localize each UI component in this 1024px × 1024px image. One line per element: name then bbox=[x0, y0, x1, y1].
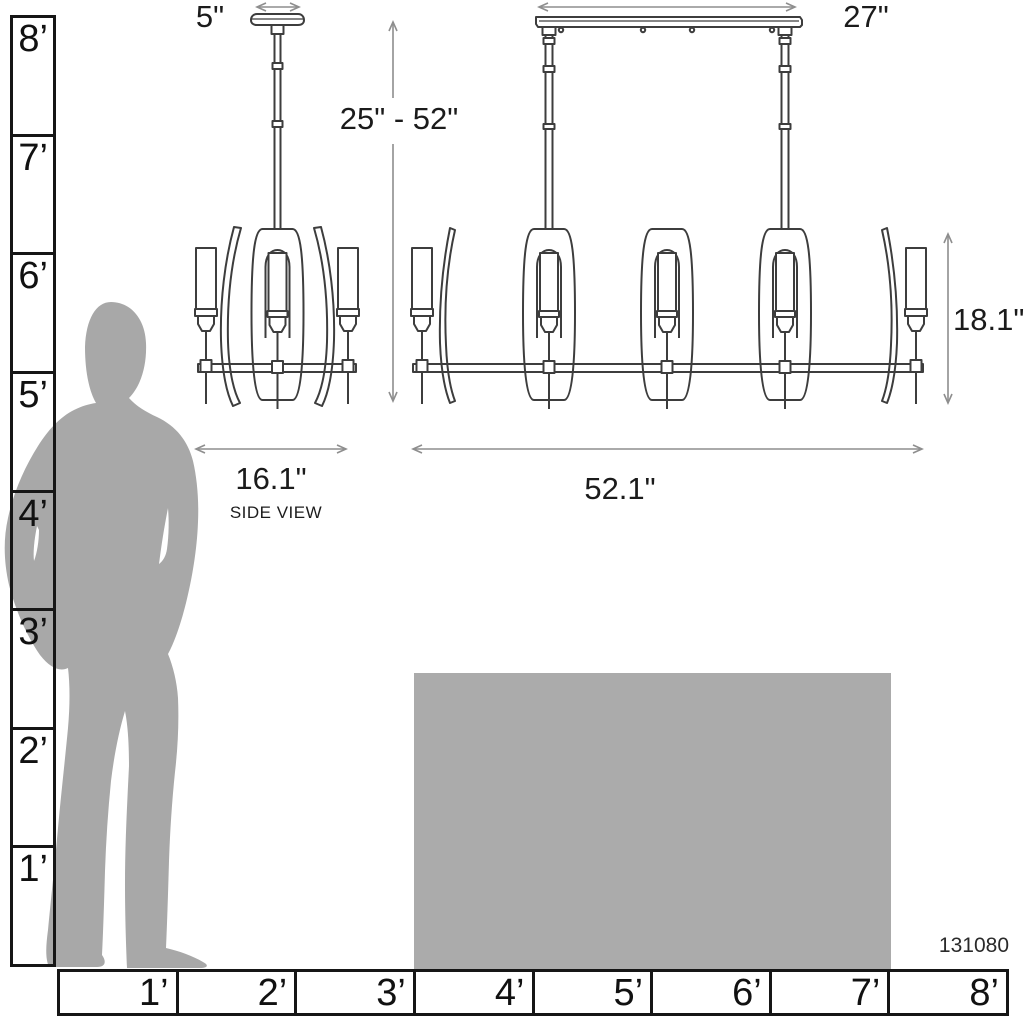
canopy-width-arrow bbox=[257, 3, 299, 11]
floor-label-5ft: 5’ bbox=[614, 973, 651, 1013]
fixture-line-art bbox=[0, 0, 1024, 1024]
height-label-2ft: 2’ bbox=[13, 730, 53, 771]
ruler-cell: 8’ bbox=[13, 18, 53, 137]
right-candle bbox=[337, 248, 359, 404]
ruler-cell: 7’ bbox=[772, 972, 891, 1013]
ruler-cell: 3’ bbox=[13, 611, 53, 730]
floor-label-3ft: 3’ bbox=[376, 973, 413, 1013]
left-drop-rod bbox=[543, 27, 556, 230]
ruler-cell: 7’ bbox=[13, 137, 53, 256]
ruler-cell: 6’ bbox=[13, 255, 53, 374]
floor-label-2ft: 2’ bbox=[258, 973, 295, 1013]
rail-width-label: 27" bbox=[836, 0, 896, 34]
side-view-caption: SIDE VIEW bbox=[201, 503, 351, 523]
side-width-arrow bbox=[196, 445, 346, 453]
side-view-drawing bbox=[195, 14, 359, 409]
floor-label-7ft: 7’ bbox=[851, 973, 888, 1013]
front-width-arrow bbox=[413, 445, 922, 453]
front-view-drawing bbox=[411, 17, 927, 409]
stem-collar bbox=[272, 25, 284, 34]
height-label-3ft: 3’ bbox=[13, 611, 53, 652]
suspension-range-arrow bbox=[389, 22, 397, 401]
ruler-cell: 5’ bbox=[13, 374, 53, 493]
canopy-width-label: 5" bbox=[182, 0, 238, 34]
height-label-1ft: 1’ bbox=[13, 848, 53, 889]
floor-label-8ft: 8’ bbox=[969, 973, 1006, 1013]
curved-panel-left bbox=[440, 228, 455, 403]
ceiling-rail bbox=[536, 17, 802, 27]
front-width-label: 52.1" bbox=[570, 472, 670, 506]
shield-glass-2 bbox=[641, 229, 693, 409]
shield-glass-1 bbox=[523, 229, 575, 409]
ruler-cell: 8’ bbox=[890, 972, 1006, 1013]
ruler-cell: 1’ bbox=[13, 848, 53, 964]
floor-label-6ft: 6’ bbox=[732, 973, 769, 1013]
curved-panel-right bbox=[882, 228, 897, 403]
curved-panel-right bbox=[314, 227, 334, 406]
height-ruler: 8’ 7’ 6’ 5’ 4’ 3’ 2’ 1’ bbox=[10, 15, 56, 967]
height-label-8ft: 8’ bbox=[13, 18, 53, 59]
rail-width-arrow bbox=[539, 3, 795, 11]
shield-glass-3 bbox=[759, 229, 811, 409]
dimension-lines bbox=[196, 3, 952, 453]
floor-label-1ft: 1’ bbox=[139, 973, 176, 1013]
center-shield-glass bbox=[252, 229, 304, 409]
ruler-cell: 6’ bbox=[653, 972, 772, 1013]
right-drop-rod bbox=[779, 27, 792, 230]
ruler-cell: 5’ bbox=[535, 972, 654, 1013]
ruler-cell: 2’ bbox=[13, 730, 53, 849]
suspension-range-label: 25" - 52" bbox=[319, 102, 479, 136]
height-label-5ft: 5’ bbox=[13, 374, 53, 415]
ruler-cell: 4’ bbox=[416, 972, 535, 1013]
right-end-candle bbox=[905, 248, 927, 404]
ruler-cell: 1’ bbox=[60, 972, 179, 1013]
ruler-cell: 2’ bbox=[179, 972, 298, 1013]
ruler-cell: 3’ bbox=[297, 972, 416, 1013]
height-label-7ft: 7’ bbox=[13, 137, 53, 178]
height-label-6ft: 6’ bbox=[13, 255, 53, 296]
left-candle bbox=[195, 248, 217, 404]
dimension-diagram: 8’ 7’ 6’ 5’ 4’ 3’ 2’ 1’ 1’ 2’ 3’ 4’ 5’ 6… bbox=[0, 0, 1024, 1024]
floor-label-4ft: 4’ bbox=[495, 973, 532, 1013]
curved-panel-left bbox=[221, 227, 241, 406]
product-number: 131080 bbox=[879, 934, 1009, 958]
side-width-label: 16.1" bbox=[221, 462, 321, 496]
height-label-4ft: 4’ bbox=[13, 493, 53, 534]
fixture-height-label: 18.1" bbox=[953, 303, 1024, 337]
floor-ruler: 1’ 2’ 3’ 4’ 5’ 6’ 7’ 8’ bbox=[57, 969, 1009, 1016]
ruler-cell: 4’ bbox=[13, 493, 53, 612]
left-end-candle bbox=[411, 248, 433, 404]
fixture-height-arrow bbox=[944, 234, 952, 403]
